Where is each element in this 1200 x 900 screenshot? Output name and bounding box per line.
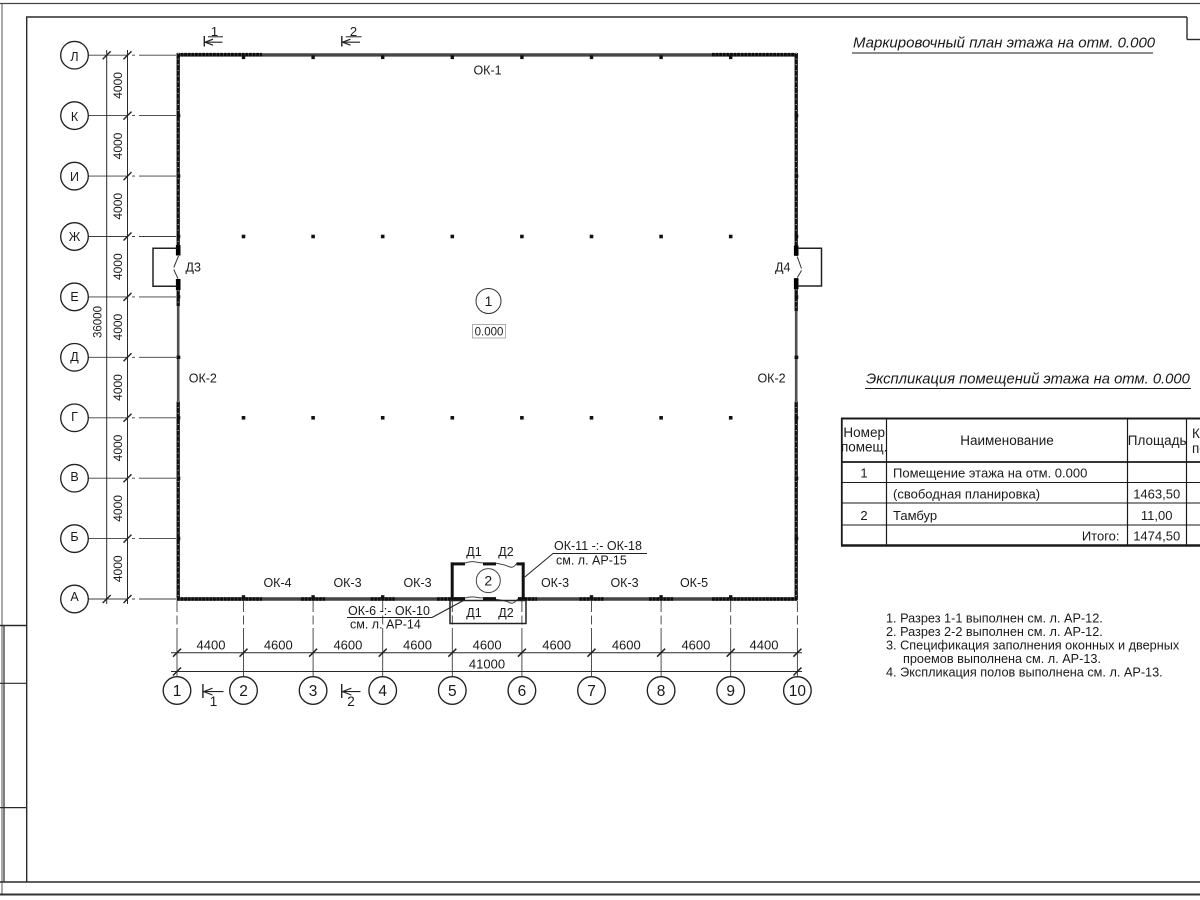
svg-text:ОК-3: ОК-3 [403, 576, 431, 590]
svg-text:Ж: Ж [69, 230, 81, 244]
svg-text:36000: 36000 [93, 306, 105, 338]
svg-text:К: К [71, 110, 79, 124]
svg-text:9: 9 [726, 683, 735, 700]
svg-text:4000: 4000 [111, 72, 125, 99]
svg-text:4600: 4600 [612, 638, 641, 653]
svg-text:11,00: 11,00 [1141, 508, 1173, 523]
svg-text:4400: 4400 [750, 638, 779, 653]
svg-text:1: 1 [173, 683, 182, 700]
svg-text:4000: 4000 [111, 495, 125, 522]
svg-text:Л: Л [70, 50, 78, 64]
svg-text:(свободная планировка): (свободная планировка) [893, 487, 1040, 502]
svg-text:ОК-1: ОК-1 [473, 64, 501, 78]
svg-text:4: 4 [378, 683, 387, 700]
svg-text:4400: 4400 [197, 638, 226, 653]
svg-text:3: 3 [309, 683, 318, 700]
svg-text:ОК-11 -:- ОК-18: ОК-11 -:- ОК-18 [554, 539, 642, 553]
svg-text:1474,50: 1474,50 [1133, 529, 1180, 544]
svg-text:помещ.: помещ. [841, 440, 887, 455]
svg-text:В: В [70, 470, 78, 484]
svg-text:по: по [1192, 441, 1200, 456]
svg-text:ОК-5: ОК-5 [680, 576, 708, 590]
svg-text:см. л. АР-15: см. л. АР-15 [556, 554, 627, 568]
svg-text:Д2: Д2 [498, 606, 513, 620]
svg-text:4600: 4600 [473, 638, 502, 653]
svg-text:4600: 4600 [403, 638, 432, 653]
svg-text:Д2: Д2 [498, 545, 513, 559]
svg-text:Д1: Д1 [466, 606, 481, 620]
svg-text:1463,50: 1463,50 [1133, 487, 1180, 502]
svg-text:4000: 4000 [111, 434, 125, 461]
svg-text:8: 8 [657, 683, 666, 700]
svg-text:см. л. АР-14: см. л. АР-14 [350, 618, 421, 632]
svg-text:Д3: Д3 [186, 261, 201, 275]
svg-text:1: 1 [485, 293, 493, 309]
svg-text:2: 2 [347, 694, 355, 709]
svg-text:2: 2 [860, 508, 867, 523]
svg-text:1. Разрез 1-1 выполнен см. л.: 1. Разрез 1-1 выполнен см. л. АР-12. [886, 612, 1103, 626]
svg-text:2. Разрез 2-2 выполнен см. л.: 2. Разрез 2-2 выполнен см. л. АР-12. [886, 625, 1103, 639]
svg-text:41000: 41000 [469, 657, 505, 672]
svg-text:Е: Е [70, 290, 78, 304]
svg-text:10: 10 [789, 683, 807, 700]
svg-text:ОК-6 -:- ОК-10: ОК-6 -:- ОК-10 [348, 604, 430, 618]
svg-text:4000: 4000 [111, 132, 125, 159]
svg-text:ОК-3: ОК-3 [610, 576, 638, 590]
svg-text:4000: 4000 [111, 193, 125, 220]
svg-text:Наименование: Наименование [960, 433, 1054, 448]
svg-text:ОК-3: ОК-3 [541, 576, 569, 590]
svg-text:4600: 4600 [333, 638, 362, 653]
svg-text:Итого:: Итого: [1082, 529, 1120, 544]
svg-text:6: 6 [518, 683, 527, 700]
svg-text:1: 1 [210, 694, 218, 709]
svg-text:Номер: Номер [843, 425, 885, 440]
svg-text:Ка: Ка [1192, 426, 1200, 441]
svg-text:Д1: Д1 [466, 545, 481, 559]
svg-text:4600: 4600 [264, 638, 293, 653]
svg-text:4600: 4600 [681, 638, 710, 653]
svg-text:Г: Г [71, 410, 78, 424]
svg-text:проемов выполнена см. л. АР-13: проемов выполнена см. л. АР-13. [903, 652, 1101, 666]
svg-text:И: И [70, 170, 79, 184]
svg-text:4000: 4000 [111, 374, 125, 401]
svg-text:2: 2 [239, 683, 248, 700]
svg-text:Маркировочный план этажа на от: Маркировочный план этажа на отм. 0.000 [853, 35, 1156, 52]
svg-text:А: А [70, 590, 79, 604]
svg-text:5: 5 [448, 683, 457, 700]
svg-text:2: 2 [484, 573, 492, 589]
svg-text:ОК-2: ОК-2 [757, 371, 785, 385]
svg-text:Площадь: Площадь [1128, 433, 1187, 448]
svg-text:Помещение этажа на отм. 0.000: Помещение этажа на отм. 0.000 [893, 466, 1087, 481]
svg-text:4600: 4600 [542, 638, 571, 653]
svg-text:Б: Б [70, 530, 78, 544]
svg-text:3. Спецификация заполнения око: 3. Спецификация заполнения оконных и две… [886, 639, 1180, 653]
svg-text:Д: Д [70, 350, 79, 364]
svg-text:ОК-4: ОК-4 [263, 576, 291, 590]
svg-text:0.000: 0.000 [475, 326, 504, 338]
svg-text:4. Экспликация полов выполнена: 4. Экспликация полов выполнена см. л. АР… [886, 666, 1163, 680]
svg-text:ОК-3: ОК-3 [333, 576, 361, 590]
svg-text:4000: 4000 [111, 555, 125, 582]
svg-text:Экспликация помещений этажа на: Экспликация помещений этажа на отм. 0.00… [866, 372, 1191, 388]
svg-text:Д4: Д4 [775, 261, 790, 275]
svg-text:Тамбур: Тамбур [893, 508, 937, 523]
svg-text:4000: 4000 [111, 253, 125, 280]
svg-text:ОК-2: ОК-2 [189, 371, 217, 385]
svg-text:4000: 4000 [111, 313, 125, 340]
svg-text:1: 1 [860, 466, 867, 481]
svg-text:7: 7 [587, 683, 596, 700]
